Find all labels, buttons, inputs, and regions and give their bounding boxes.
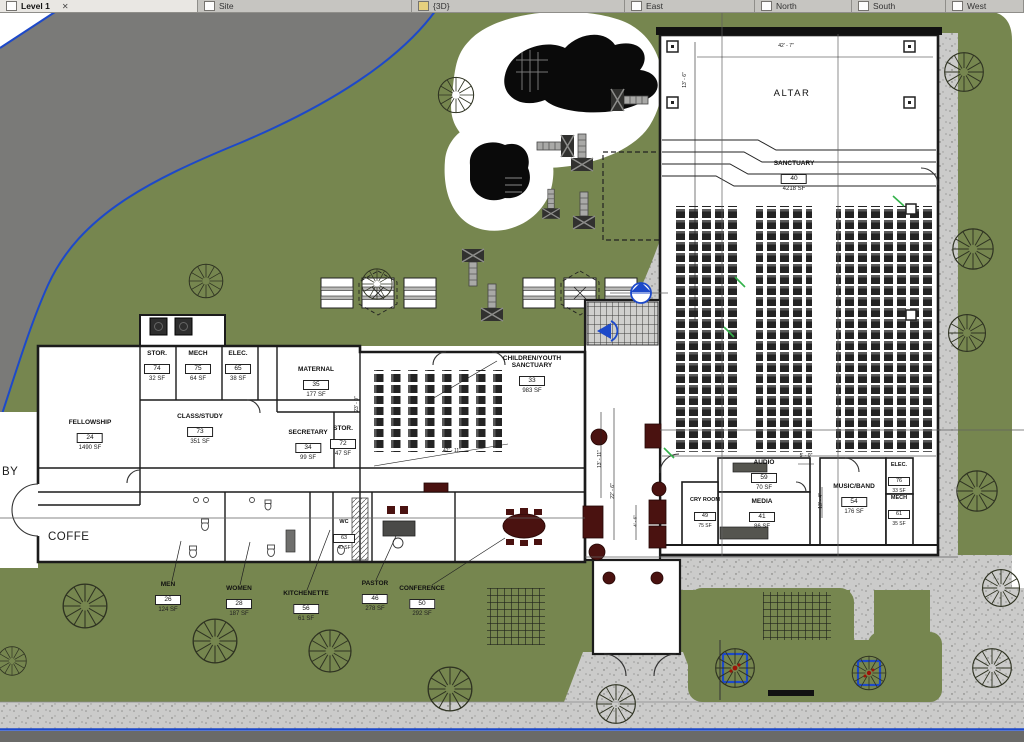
dim-lobby-c: 4' - 6" — [633, 515, 638, 526]
room-number: 63 — [333, 534, 355, 543]
room-number: 72 — [330, 439, 356, 449]
room-tag-children_youth[interactable]: CHILDREN/YOUTH SANCTUARY33983 SF — [488, 355, 576, 395]
elevation-icon — [631, 1, 642, 11]
room-tag-class_study[interactable]: CLASS/STUDY73351 SF — [177, 413, 223, 446]
room-number: 59 — [751, 473, 777, 483]
room-tag-music_band[interactable]: MUSIC/BAND54176 SF — [833, 483, 875, 516]
room-number: 50 — [409, 599, 435, 609]
room-number: 49 — [694, 512, 716, 521]
room-name: MUSIC/BAND — [833, 483, 875, 490]
room-tag-mech_a[interactable]: MECH7564 SF — [185, 350, 211, 383]
tab-label: Level 1 — [21, 1, 50, 11]
3d-view-icon — [418, 1, 429, 11]
room-name: ELEC. — [888, 462, 910, 469]
room-number: 65 — [225, 364, 251, 374]
dim-cys-depth: 23' - 0" — [354, 396, 360, 412]
room-number: 34 — [295, 443, 321, 453]
room-tag-secretary[interactable]: SECRETARY3499 SF — [288, 429, 327, 462]
dim-band-depth: 13' - 4" — [818, 493, 824, 509]
tab-label: East — [646, 1, 663, 11]
room-number: 54 — [841, 497, 867, 507]
room-area: 351 SF — [177, 439, 223, 446]
room-area: 278 SF — [362, 606, 389, 613]
room-area: 124 SF — [155, 607, 181, 614]
plan-labels: BY COFFE 42' - 7" 13' - 6" 5' - 0" 13' -… — [0, 0, 1024, 742]
tab-label: West — [967, 1, 986, 11]
room-tag-elec_a[interactable]: ELEC.6538 SF — [225, 350, 251, 383]
room-area: 75 SF — [690, 523, 720, 530]
dim-lobby-a: 13' - 11" — [597, 450, 603, 468]
view-tab-bar: Level 1 ✕ Site {3D} East North South Wes… — [0, 0, 1024, 13]
room-name: WOMEN — [226, 585, 252, 592]
tab-label: {3D} — [433, 1, 450, 11]
room-name: SANCTUARY — [774, 160, 815, 167]
room-name: CRY ROOM — [690, 497, 720, 504]
tab-label: South — [873, 1, 895, 11]
room-tag-audio[interactable]: AUDIO5970 SF — [751, 459, 777, 492]
room-area: 47 SF — [330, 451, 356, 458]
room-tag-fellowship[interactable]: FELLOWSHIP241490 SF — [69, 419, 112, 452]
room-number: 74 — [144, 364, 170, 374]
room-number: 35 — [303, 380, 329, 390]
room-area: 32 SF — [144, 376, 170, 383]
room-number: 75 — [185, 364, 211, 374]
room-name: CONFERENCE — [399, 585, 445, 592]
room-area: 177 SF — [298, 392, 334, 399]
room-number: 24 — [77, 433, 103, 443]
floor-plan-canvas[interactable]: BY COFFE 42' - 7" 13' - 6" 5' - 0" 13' -… — [0, 0, 1024, 742]
room-area: 38 SF — [225, 376, 251, 383]
dim-cys-width: 42' - 11" — [443, 448, 461, 454]
room-name: AUDIO — [751, 459, 777, 466]
room-area: 61 SF — [283, 616, 329, 623]
elevation-icon — [952, 1, 963, 11]
room-tag-wc[interactable]: WC6340 SF — [333, 519, 355, 552]
room-area: 983 SF — [488, 388, 576, 395]
room-name: STOR. — [330, 425, 356, 432]
tab-east[interactable]: East — [625, 0, 755, 12]
elevation-icon — [761, 1, 772, 11]
dim-audio-jog: 5' - 0" — [800, 453, 813, 459]
room-name: MECH — [888, 495, 910, 502]
room-area: 86 SF — [749, 524, 775, 531]
room-tag-women[interactable]: WOMEN28187 SF — [226, 585, 252, 618]
room-area: 70 SF — [751, 485, 777, 492]
room-name: MEDIA — [749, 498, 775, 505]
room-name: MECH — [185, 350, 211, 357]
floor-plan-icon — [6, 1, 17, 11]
room-name: STOR. — [144, 350, 170, 357]
tab-west[interactable]: West — [946, 0, 1024, 12]
room-area: 4218 SF — [774, 186, 815, 193]
room-name: KITCHENETTE — [283, 590, 329, 597]
room-tag-mech_b[interactable]: MECH6135 SF — [888, 495, 910, 528]
tab-label: North — [776, 1, 797, 11]
room-tag-sanctuary[interactable]: SANCTUARY404218 SF — [774, 160, 815, 193]
room-area: 1490 SF — [69, 445, 112, 452]
room-tag-maternal[interactable]: MATERNAL35177 SF — [298, 366, 334, 399]
tab-level-1[interactable]: Level 1 ✕ — [0, 0, 198, 12]
room-area: 40 SF — [333, 545, 355, 552]
tab-3d[interactable]: {3D} — [412, 0, 625, 12]
room-tag-elec_b[interactable]: ELEC.7633 SF — [888, 462, 910, 495]
room-number: 33 — [519, 376, 545, 386]
room-name: SECRETARY — [288, 429, 327, 436]
room-number: 28 — [226, 599, 252, 609]
revit-window: Level 1 ✕ Site {3D} East North South Wes… — [0, 0, 1024, 742]
tab-label: Site — [219, 1, 234, 11]
dim-lobby-b: 22' - 6" — [610, 483, 616, 499]
room-tag-cry_room[interactable]: CRY ROOM4975 SF — [690, 497, 720, 530]
room-tag-altar[interactable]: ALTAR — [774, 90, 811, 97]
dim-altar-width: 42' - 7" — [778, 43, 794, 49]
room-area: 176 SF — [833, 509, 875, 516]
room-name: WC — [333, 519, 355, 526]
coffee-text: COFFE — [48, 531, 89, 543]
tab-south[interactable]: South — [852, 0, 946, 12]
room-name: PASTOR — [362, 580, 389, 587]
room-number: 61 — [888, 510, 910, 519]
room-tag-men[interactable]: MEN26124 SF — [155, 581, 181, 614]
room-number: 26 — [155, 595, 181, 605]
close-tab-icon[interactable]: ✕ — [62, 2, 69, 11]
room-number: 76 — [888, 477, 910, 486]
room-name: ALTAR — [774, 90, 811, 97]
room-number: 41 — [749, 512, 775, 522]
room-area: 33 SF — [888, 488, 910, 495]
room-area: 64 SF — [185, 376, 211, 383]
room-number: 56 — [293, 604, 319, 614]
room-name: CHILDREN/YOUTH SANCTUARY — [488, 355, 576, 369]
lobby-text-partial: BY — [2, 466, 18, 478]
room-area: 35 SF — [888, 521, 910, 528]
tab-site[interactable]: Site — [198, 0, 412, 12]
room-tag-stor_a[interactable]: STOR.7432 SF — [144, 350, 170, 383]
room-tag-pastor[interactable]: PASTOR46278 SF — [362, 580, 389, 613]
room-name: MATERNAL — [298, 366, 334, 373]
room-number: 40 — [781, 174, 807, 184]
room-number: 73 — [187, 427, 213, 437]
room-number: 46 — [362, 594, 388, 604]
room-tag-conference[interactable]: CONFERENCE50292 SF — [399, 585, 445, 618]
room-name: ELEC. — [225, 350, 251, 357]
room-area: 292 SF — [399, 611, 445, 618]
room-tag-stor_b[interactable]: STOR.7247 SF — [330, 425, 356, 458]
site-plan-icon — [204, 1, 215, 11]
room-tag-kitchenette[interactable]: KITCHENETTE5661 SF — [283, 590, 329, 623]
room-area: 187 SF — [226, 611, 252, 618]
dim-altar-depth: 13' - 6" — [682, 72, 688, 88]
elevation-icon — [858, 1, 869, 11]
room-name: FELLOWSHIP — [69, 419, 112, 426]
room-tag-media[interactable]: MEDIA4186 SF — [749, 498, 775, 531]
room-name: CLASS/STUDY — [177, 413, 223, 420]
room-area: 99 SF — [288, 455, 327, 462]
tab-north[interactable]: North — [755, 0, 852, 12]
room-name: MEN — [155, 581, 181, 588]
